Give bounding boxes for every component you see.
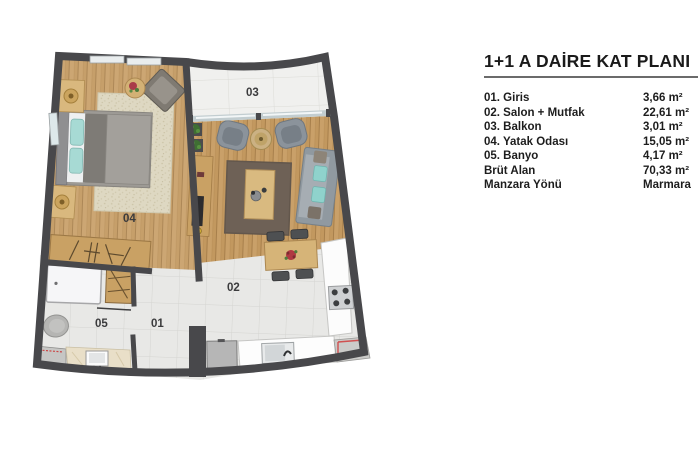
legend-title: 1+1 A DAİRE KAT PLANI <box>484 51 699 72</box>
legend-row-balkon: 03. Balkon 3,01 m² <box>484 120 699 135</box>
legend: 1+1 A DAİRE KAT PLANI 01. Giris 3,66 m² … <box>484 51 699 193</box>
legend-label: 01. Giris <box>484 91 643 106</box>
stove <box>328 285 353 309</box>
legend-label: Manzara Yönü <box>484 178 643 193</box>
legend-value: 15,05 m² <box>643 135 689 150</box>
legend-value: Marmara <box>643 178 691 193</box>
legend-label: 03. Balkon <box>484 120 643 135</box>
round-side-table <box>251 129 272 150</box>
label-giris: 01 <box>151 318 164 330</box>
legend-row-manzara: Manzara Yönü Marmara <box>484 178 699 193</box>
bedroom-side-window <box>49 113 59 145</box>
bed <box>56 110 153 188</box>
legend-label: 05. Banyo <box>484 149 643 164</box>
legend-row-banyo: 05. Banyo 4,17 m² <box>484 149 699 164</box>
label-balkon: 03 <box>246 87 259 99</box>
legend-rows: 01. Giris 3,66 m² 02. Salon + Mutfak 22,… <box>484 91 699 193</box>
legend-value: 3,66 m² <box>643 91 683 106</box>
label-salon: 02 <box>227 282 240 294</box>
bath-small-wall <box>133 269 134 304</box>
legend-label: Brüt Alan <box>484 164 643 179</box>
entry-wall-column <box>189 326 206 377</box>
shower-tray <box>46 265 101 304</box>
legend-value: 22,61 m² <box>643 106 689 121</box>
legend-row-giris: 01. Giris 3,66 m² <box>484 91 699 106</box>
bedroom-window-2 <box>127 58 161 65</box>
legend-row-salon: 02. Salon + Mutfak 22,61 m² <box>484 106 699 121</box>
coffee-table <box>244 170 275 220</box>
fridge <box>207 339 238 369</box>
legend-underline <box>484 76 698 78</box>
nightstand-top <box>57 80 84 113</box>
legend-row-brut-alan: Brüt Alan 70,33 m² <box>484 164 699 179</box>
label-banyo: 05 <box>95 318 108 330</box>
legend-value: 3,01 m² <box>643 120 683 135</box>
floor-plan-page: 03 04 02 01 05 1+1 A DAİRE KAT PLANI 01.… <box>0 0 700 466</box>
label-yatak: 04 <box>123 213 136 225</box>
legend-value: 70,33 m² <box>643 164 689 179</box>
legend-label: 04. Yatak Odası <box>484 135 643 150</box>
floor-plan: 03 04 02 01 05 <box>0 0 470 466</box>
bath-stub-wall <box>133 337 135 371</box>
legend-label: 02. Salon + Mutfak <box>484 106 643 121</box>
bedroom-window-1 <box>90 56 124 63</box>
bedroom-plant-table <box>125 78 145 98</box>
legend-row-yatak: 04. Yatak Odası 15,05 m² <box>484 135 699 150</box>
legend-value: 4,17 m² <box>643 149 683 164</box>
